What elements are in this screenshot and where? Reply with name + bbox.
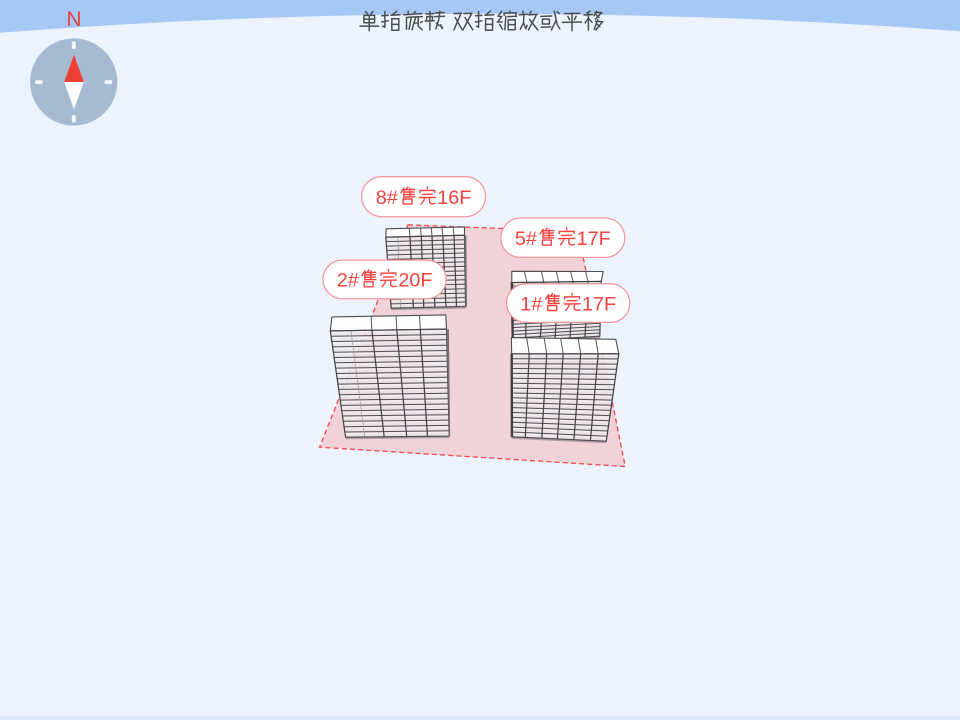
svg-text:16F: 16F bbox=[437, 187, 471, 209]
svg-text:2#: 2# bbox=[337, 270, 359, 292]
svg-text:8#: 8# bbox=[376, 187, 398, 209]
svg-text:N: N bbox=[66, 8, 81, 31]
svg-text:20F: 20F bbox=[398, 270, 432, 292]
svg-text:17F: 17F bbox=[582, 293, 616, 315]
svg-text:1#: 1# bbox=[520, 293, 542, 315]
svg-text:17F: 17F bbox=[577, 228, 611, 250]
svg-text:5#: 5# bbox=[515, 228, 537, 250]
